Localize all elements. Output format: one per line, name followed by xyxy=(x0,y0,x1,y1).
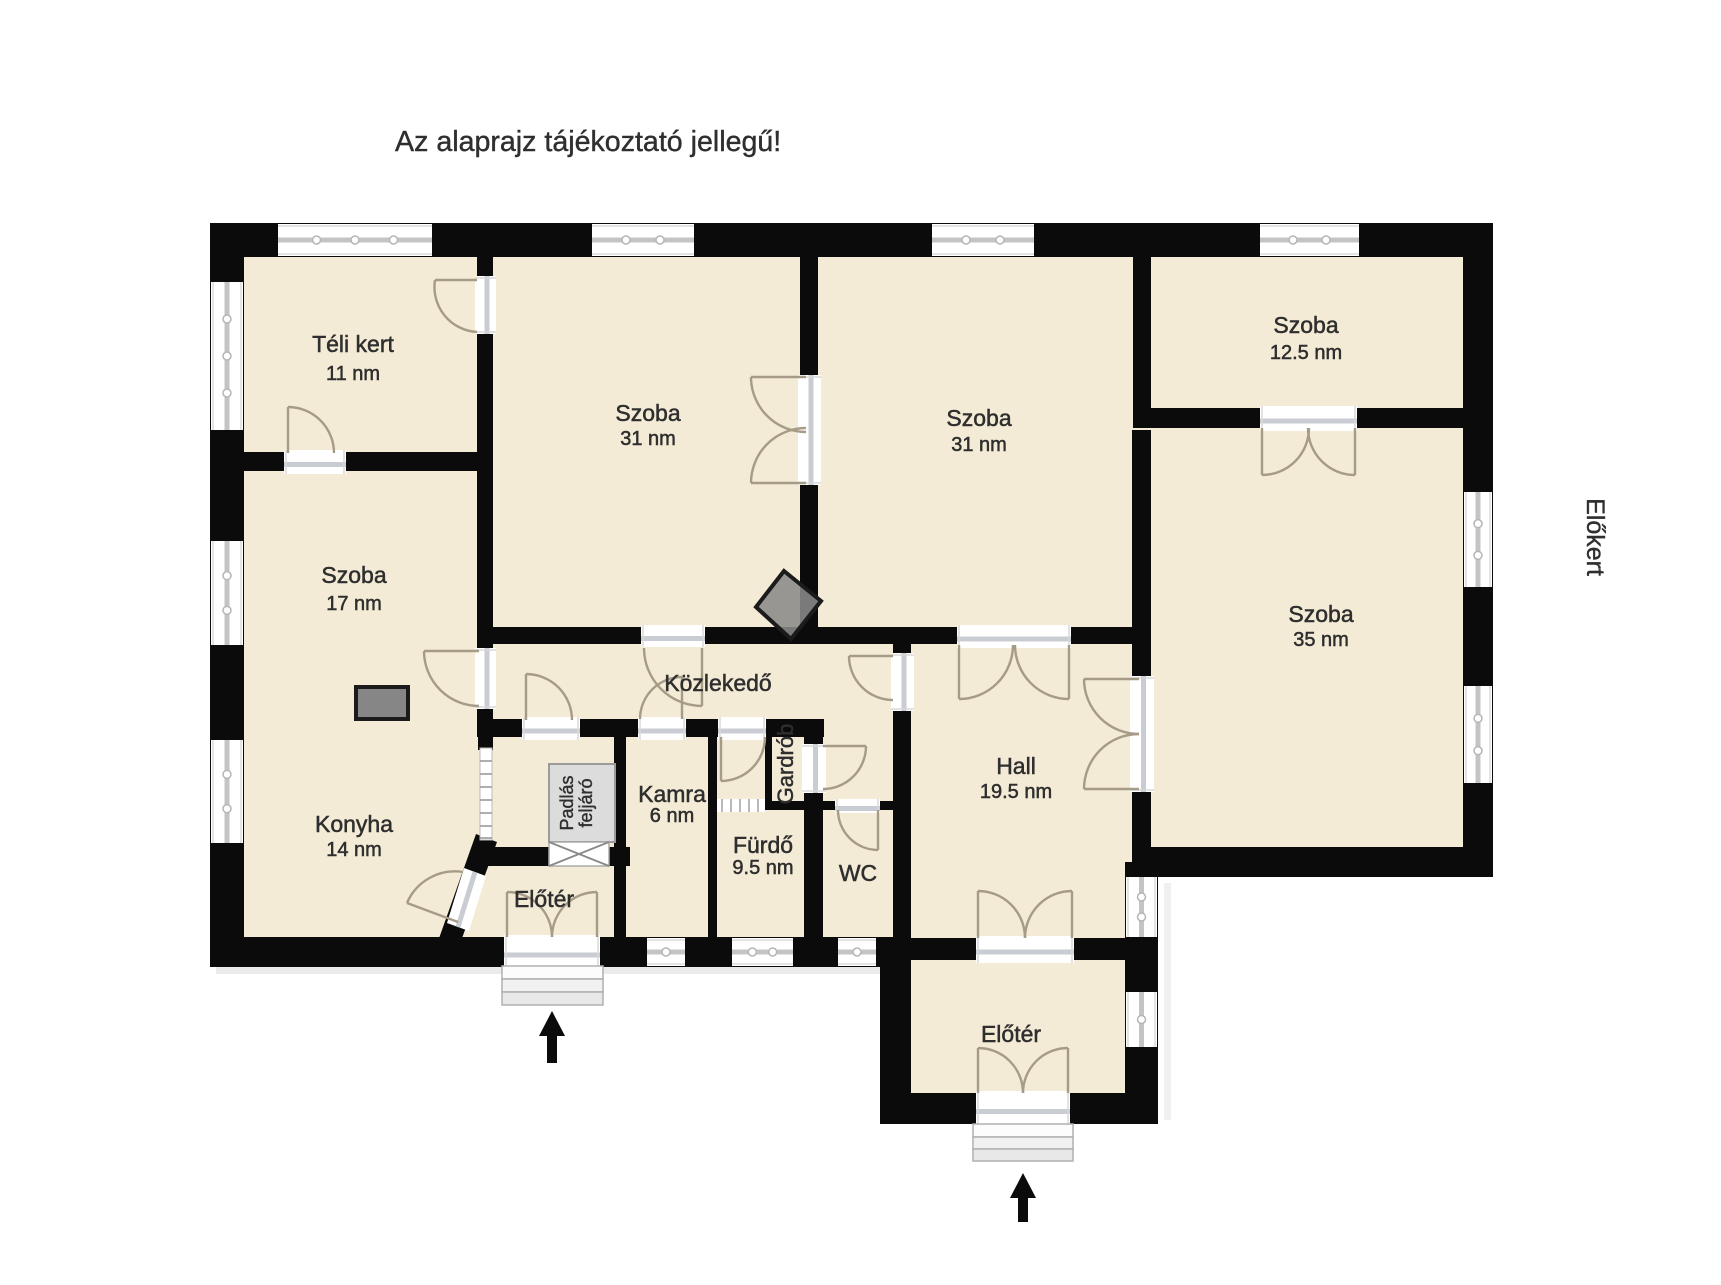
svg-text:Hall: Hall xyxy=(996,753,1036,779)
svg-text:Gardrób: Gardrób xyxy=(773,724,798,805)
svg-text:Szoba: Szoba xyxy=(1288,601,1353,627)
svg-text:Fürdő: Fürdő xyxy=(733,832,793,858)
svg-text:Konyha: Konyha xyxy=(315,811,393,837)
svg-text:Szoba: Szoba xyxy=(946,405,1011,431)
svg-text:Szoba: Szoba xyxy=(615,400,680,426)
svg-text:WC: WC xyxy=(839,860,877,886)
svg-text:9.5 nm: 9.5 nm xyxy=(732,857,793,879)
svg-text:Közlekedő: Közlekedő xyxy=(664,670,771,696)
svg-text:14 nm: 14 nm xyxy=(326,839,382,861)
svg-text:31 nm: 31 nm xyxy=(951,434,1007,456)
svg-text:Kamra: Kamra xyxy=(638,781,706,807)
svg-text:17 nm: 17 nm xyxy=(326,593,382,615)
svg-text:35 nm: 35 nm xyxy=(1293,629,1349,651)
svg-text:Előtér: Előtér xyxy=(514,886,574,912)
svg-text:Téli kert: Téli kert xyxy=(312,331,394,357)
svg-text:19.5 nm: 19.5 nm xyxy=(980,781,1052,803)
svg-text:6 nm: 6 nm xyxy=(650,805,694,827)
svg-text:feljáró: feljáró xyxy=(576,778,596,827)
svg-text:Előtér: Előtér xyxy=(981,1021,1041,1047)
svg-text:Szoba: Szoba xyxy=(1273,312,1338,338)
svg-text:Szoba: Szoba xyxy=(321,562,386,588)
svg-text:31 nm: 31 nm xyxy=(620,428,676,450)
svg-text:12.5 nm: 12.5 nm xyxy=(1270,342,1342,364)
svg-text:Előkert: Előkert xyxy=(1581,498,1609,576)
svg-text:11 nm: 11 nm xyxy=(326,363,380,385)
svg-text:Padlás: Padlás xyxy=(557,775,577,830)
svg-text:Az alaprajz tájékoztató jelleg: Az alaprajz tájékoztató jellegű! xyxy=(395,126,781,158)
